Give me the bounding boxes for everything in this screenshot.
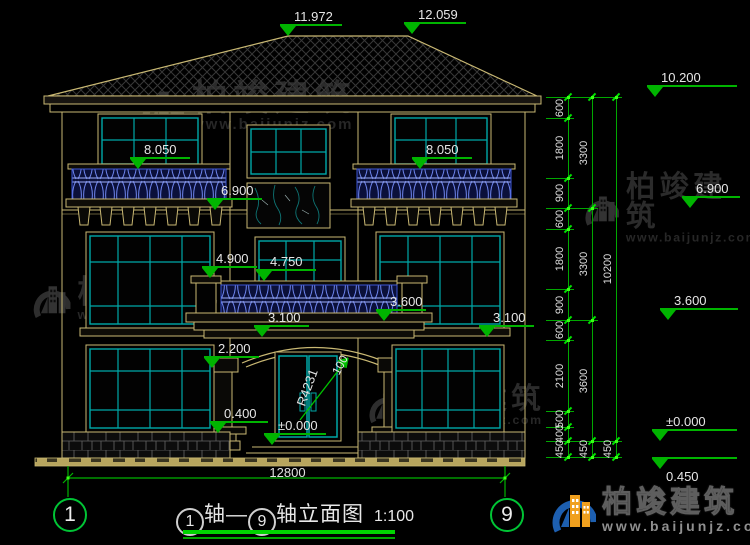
- elevation-marker-label: 8.050: [144, 142, 190, 157]
- elevation-drawing: [0, 0, 750, 545]
- title-underline-thin: [183, 537, 395, 539]
- dimension-segment-label: 900: [554, 295, 566, 313]
- dimension-extension-line: [546, 340, 574, 341]
- dimension-segment-label: 900: [554, 184, 566, 202]
- dimension-node: [567, 426, 570, 429]
- elevation-marker-triangle: [210, 423, 226, 433]
- dimension-segment-label: 3300: [578, 252, 590, 276]
- elevation-marker: 3.100: [254, 310, 309, 337]
- dimension-extension-line: [546, 178, 574, 179]
- elevation-marker-triangle: [647, 87, 663, 97]
- elevation-marker-triangle: [202, 268, 218, 278]
- elevation-marker: 10.200: [647, 70, 737, 97]
- dimension-node: [615, 96, 618, 99]
- dimension-node: [567, 410, 570, 413]
- dimension-node: [567, 207, 570, 210]
- elevation-marker-triangle: [412, 159, 428, 169]
- elevation-marker-label: 3.600: [674, 293, 738, 308]
- elevation-marker: 11.972: [280, 9, 342, 36]
- dimension-node: [591, 319, 594, 322]
- dimension-segment-label: 600: [554, 321, 566, 339]
- dimension-extension-line: [546, 118, 574, 119]
- dimension-node: [615, 456, 618, 459]
- dimension-node: [567, 456, 570, 459]
- elevation-marker: 6.900: [682, 181, 740, 208]
- elevation-marker-label: ±0.000: [666, 414, 737, 429]
- dimension-segment-label: 10200: [602, 254, 614, 285]
- brand-logo: 柏竣建筑 www.baijunjz.com: [548, 486, 750, 536]
- elevation-marker-triangle: [207, 200, 223, 210]
- elevation-marker: 3.600: [660, 293, 738, 320]
- elevation-marker-label: 0.450: [666, 469, 737, 484]
- dimension-node: [567, 319, 570, 322]
- dimension-node: [567, 96, 570, 99]
- elevation-marker-label: 10.200: [661, 70, 737, 85]
- dimension-extension-line: [546, 289, 574, 290]
- elevation-marker: 3.100: [479, 310, 534, 337]
- elevation-marker: 0.400: [210, 406, 268, 433]
- elevation-marker-triangle: [376, 311, 392, 321]
- elevation-marker-triangle: [660, 310, 676, 320]
- dimension-segment-label: 450: [602, 440, 614, 458]
- elevation-marker-label: 3.600: [390, 294, 426, 309]
- dimension-chain-line: [592, 97, 593, 457]
- dimension-segment-label: 3600: [578, 368, 590, 392]
- elevation-marker-triangle: [682, 198, 698, 208]
- title-text-suffix: 轴立面图: [276, 503, 364, 526]
- title-scale: 1:100: [374, 508, 414, 525]
- dimension-node: [567, 288, 570, 291]
- title-text-mid: 轴—: [204, 503, 248, 526]
- dimension-chain-line: [568, 97, 569, 457]
- elevation-marker-label: 4.900: [216, 251, 257, 266]
- elevation-marker-label: 11.972: [294, 9, 342, 24]
- dimension-node: [591, 456, 594, 459]
- elevation-marker: 8.050: [412, 142, 472, 169]
- elevation-marker-triangle: [652, 459, 668, 469]
- elevation-marker-label: 0.400: [224, 406, 268, 421]
- elevation-marker-triangle: [204, 358, 220, 368]
- dimension-node: [591, 440, 594, 443]
- elevation-marker-triangle: [404, 24, 420, 34]
- dimension-segment-label: 1800: [554, 247, 566, 271]
- dimension-extension-line: [546, 229, 574, 230]
- elevation-marker-triangle: [130, 159, 146, 169]
- brand-logo-icon: [548, 486, 596, 536]
- dimension-segment-label: 600: [554, 98, 566, 116]
- dimension-segment-label: 1800: [554, 136, 566, 160]
- dimension-segment-label: 450: [578, 440, 590, 458]
- elevation-marker: 2.200: [204, 341, 259, 368]
- brand-name: 柏竣建筑: [602, 488, 750, 518]
- elevation-marker-label: 8.050: [426, 142, 472, 157]
- elevation-marker: 4.900: [202, 251, 257, 278]
- elevation-marker-triangle: [256, 271, 272, 281]
- elevation-marker-triangle: [264, 435, 280, 445]
- elevation-marker: ±0.000: [264, 418, 326, 445]
- axis-bubble-1: 1: [53, 498, 87, 532]
- dimension-segment-label: 600: [554, 209, 566, 227]
- elevation-marker: 8.050: [130, 142, 190, 169]
- title-underline-thick: [183, 530, 395, 534]
- elevation-marker-triangle: [254, 327, 270, 337]
- dimension-node: [567, 228, 570, 231]
- elevation-marker-label: 2.200: [218, 341, 259, 356]
- elevation-marker: 4.750: [256, 254, 316, 281]
- elevation-marker-label: 6.900: [221, 183, 262, 198]
- brand-url: www.baijunjz.com: [602, 518, 750, 534]
- elevation-marker: 6.900: [207, 183, 262, 210]
- axis-bubble-9: 9: [490, 498, 524, 532]
- dimension-node: [591, 207, 594, 210]
- dimension-node: [567, 440, 570, 443]
- elevation-marker-triangle: [479, 327, 495, 337]
- elevation-marker-label: 4.750: [270, 254, 316, 269]
- dimension-node: [567, 339, 570, 342]
- dimension-node: [591, 96, 594, 99]
- elevation-marker-label: 3.100: [493, 310, 534, 325]
- elevation-marker-triangle: [652, 431, 668, 441]
- elevation-marker: 3.600: [376, 294, 426, 321]
- elevation-marker-label: 6.900: [696, 181, 740, 196]
- elevation-marker: 12.059: [404, 7, 466, 34]
- dimension-node: [567, 117, 570, 120]
- elevation-marker-label: ±0.000: [278, 418, 326, 433]
- elevation-marker: 0.450: [652, 457, 737, 484]
- dimension-node: [615, 440, 618, 443]
- dimension-segment-label: 2100: [554, 363, 566, 387]
- elevation-marker-label: 3.100: [268, 310, 309, 325]
- dimension-node: [567, 177, 570, 180]
- dimension-segment-label: 3300: [578, 140, 590, 164]
- dimension-chain-line: [616, 97, 617, 457]
- elevation-marker-triangle: [280, 26, 296, 36]
- elevation-marker: ±0.000: [652, 414, 737, 441]
- elevation-marker-label: 12.059: [418, 7, 466, 22]
- cad-elevation-canvas: R4231 100 12800 1 9 1轴—9轴立面图1:100 柏竣建筑 w…: [0, 0, 750, 545]
- dimension-segment-label: 450: [554, 440, 566, 458]
- overall-width-dimension: 12800: [230, 465, 345, 480]
